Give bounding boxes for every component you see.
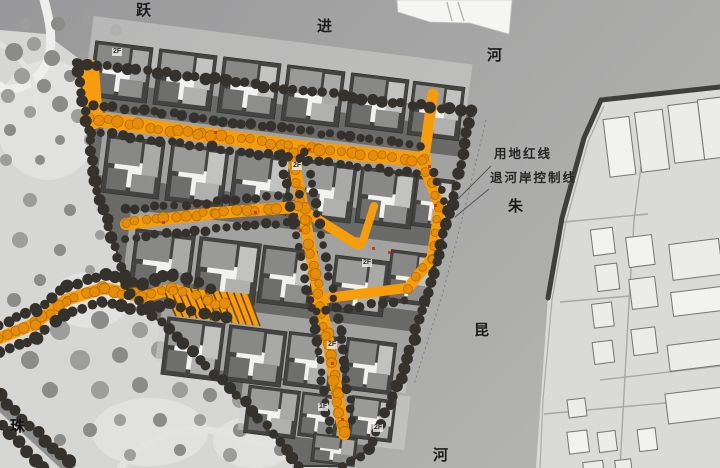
site-plan: 跃 进 河 用地红线 退河岸控制线 朱 昆 河 珠 2F2F2F2F1F2F (0, 0, 720, 468)
label-zhukun-river-char-3: 河 (433, 448, 448, 463)
label-yuejin-river-char-3: 河 (487, 48, 502, 63)
floor-count-tag: 2F (362, 259, 372, 267)
floor-count-tag: 2F (292, 162, 302, 170)
label-land-red-line: 用地红线 (494, 148, 552, 161)
site-plan-canvas (0, 0, 720, 468)
label-yuejin-river-char-2: 进 (317, 19, 332, 34)
label-zhukun-river-char-2: 昆 (474, 323, 489, 338)
label-yuejin-river-char-1: 跃 (136, 3, 151, 18)
label-riverbank-setback-line: 退河岸控制线 (490, 172, 577, 185)
floor-count-tag: 1F (318, 403, 328, 411)
floor-count-tag: 2F (112, 48, 122, 56)
building-cluster (223, 325, 287, 388)
label-zhu-river-west: 珠 (10, 419, 25, 434)
floor-count-tag: 2F (327, 341, 337, 349)
label-zhukun-river-char-1: 朱 (508, 199, 523, 214)
floor-count-tag: 2F (373, 424, 383, 432)
